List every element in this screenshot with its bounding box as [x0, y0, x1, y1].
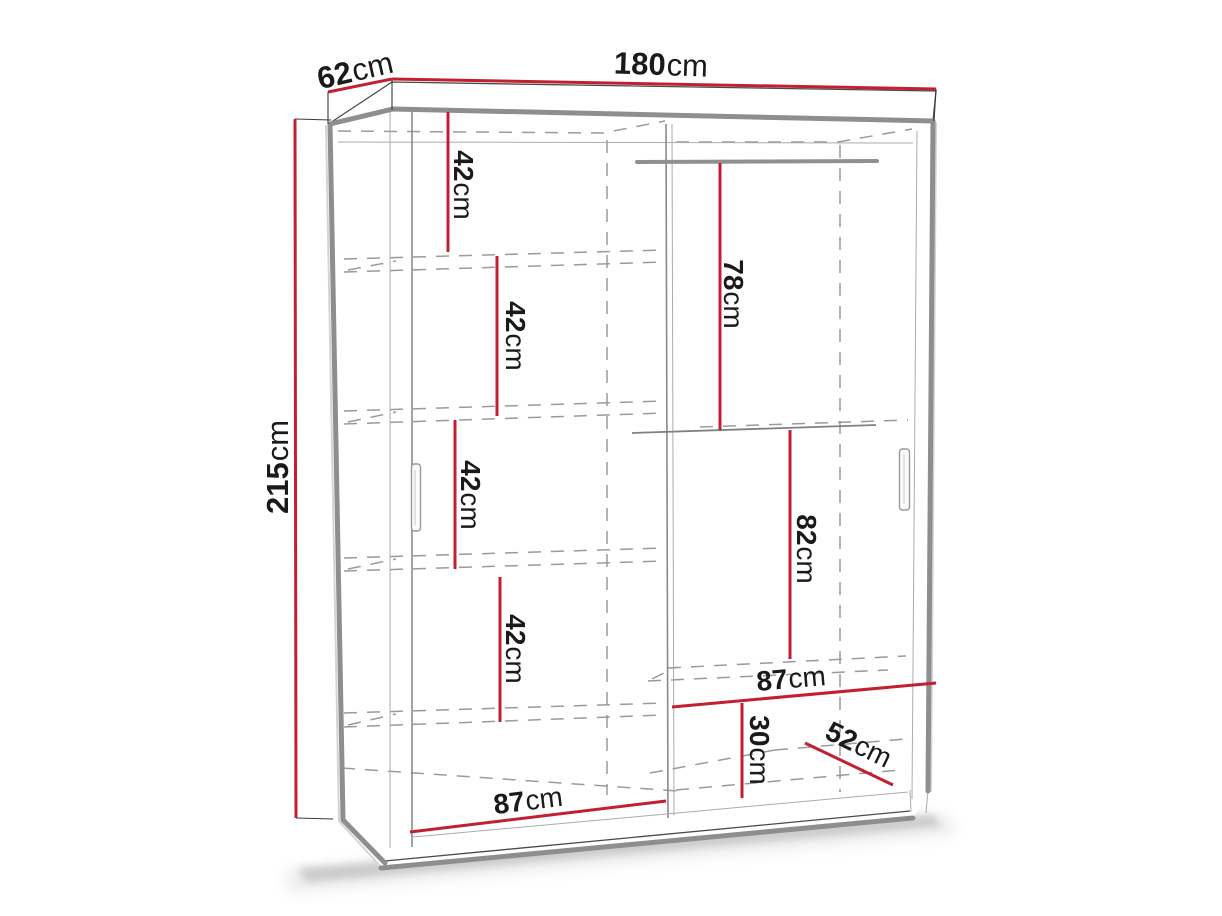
wardrobe-dimension-diagram: 180cm 62cm 215cm 42cm 42cm 42cm 42cm 78c…: [0, 0, 1222, 916]
sliding-door-handle-left: [412, 464, 421, 531]
dim-label-shelf-gap-4: 42cm: [501, 614, 532, 683]
dim-label-shelf-gap-3: 42cm: [456, 460, 487, 529]
handle-left-bar: [412, 464, 421, 531]
ext-height-top: [295, 119, 331, 120]
dim-label-right-section-width: 87cm: [755, 660, 827, 697]
dim-line-height: [295, 119, 296, 818]
dim-label-hanging-lower: 82cm: [792, 514, 823, 583]
plinth-right-step-a: [926, 791, 928, 813]
dim-label-hanging-upper: 78cm: [719, 259, 750, 328]
dim-label-width: 180cm: [613, 45, 708, 83]
dim-label-shelf-gap-2: 42cm: [501, 301, 532, 370]
dim-label-shelf-gap-1: 42cm: [449, 150, 480, 219]
dim-label-bottom-shelf-gap: 30cm: [745, 715, 776, 784]
hanging-rod: [637, 161, 877, 162]
ext-height-bottom: [296, 818, 333, 819]
diagram-canvas: 180cm 62cm 215cm 42cm 42cm 42cm 42cm 78c…: [0, 0, 1222, 916]
sliding-door-handle-right: [900, 449, 910, 510]
dim-label-height: 215cm: [260, 420, 295, 514]
